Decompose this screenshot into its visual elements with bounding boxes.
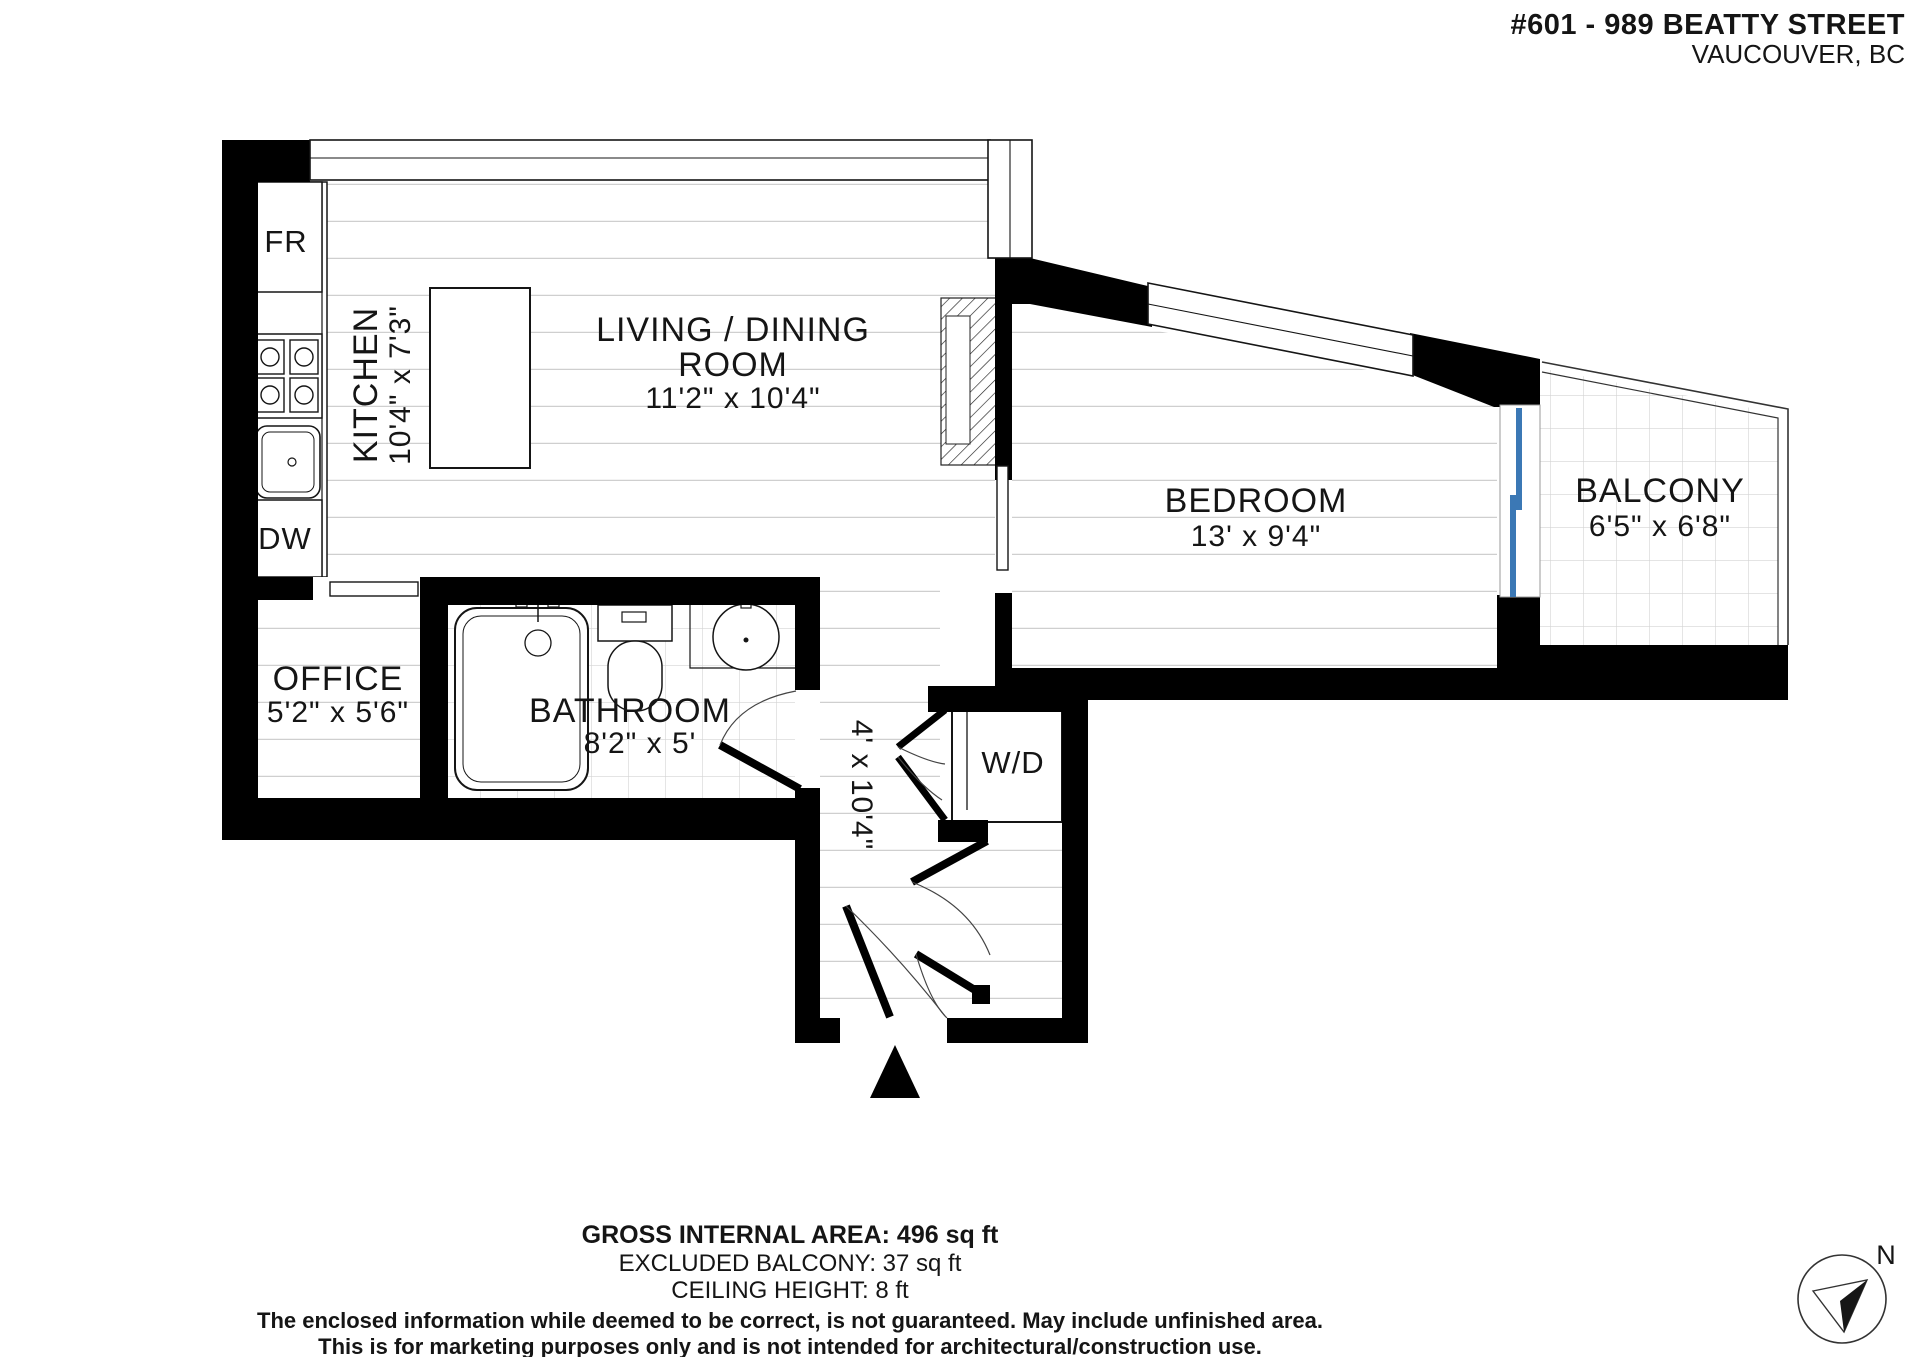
balcony-door-panel-2 (1510, 495, 1516, 597)
washer-dryer-label: W/D (981, 745, 1044, 780)
duct-inner (946, 316, 970, 444)
footer: GROSS INTERNAL AREA: 496 sq ft EXCLUDED … (257, 1221, 1323, 1357)
wall-top-left-corner (222, 140, 310, 182)
bedroom-label: BEDROOM (1165, 482, 1348, 520)
wall-entry-bottom-right (947, 1018, 1088, 1043)
wall-balcony-door-column (1497, 595, 1540, 670)
bathroom-sink (713, 604, 779, 670)
living-room-label-1: LIVING / DINING (596, 311, 870, 349)
fridge-label: FR (264, 224, 307, 259)
wall-bathroom-top (448, 577, 795, 605)
burner-ring-icon (295, 348, 313, 366)
burner-ring-icon (295, 386, 313, 404)
gross-area-text: GROSS INTERNAL AREA: 496 sq ft (582, 1221, 999, 1249)
entrance-marker-icon (870, 1045, 920, 1098)
ceiling-height-text: CEILING HEIGHT: 8 ft (671, 1277, 909, 1304)
sink-drain-icon (288, 458, 296, 466)
living-room-dims: 11'2" x 10'4" (645, 382, 820, 415)
bathroom-sink-drain-icon (744, 638, 749, 643)
floorplan-page: LIVING / DINING ROOM 11'2" x 10'4" KITCH… (0, 0, 1920, 1357)
hall-dims: 4' x 10'4" (845, 720, 878, 851)
wall-closet-bottom (938, 820, 988, 842)
address-line-1: #601 - 989 BEATTY STREET (1510, 9, 1905, 41)
disclaimer-line-1: The enclosed information while deemed to… (257, 1308, 1323, 1333)
bathroom-label: BATHROOM (529, 692, 731, 730)
window-living-top (310, 140, 990, 180)
wall-bathroom-right-upper (795, 577, 820, 690)
balcony-door-panel-1 (1516, 408, 1522, 510)
office-label: OFFICE (273, 660, 404, 698)
wall-bottom-office-bath (222, 798, 820, 840)
wall-hall-left (795, 840, 820, 1043)
balcony-label: BALCONY (1575, 472, 1745, 510)
kitchen-dims: 10'4" x 7'3" (384, 305, 417, 465)
bathroom-dims: 8'2" x 5' (584, 727, 697, 760)
wall-bedroom-left-upper (995, 302, 1012, 480)
kitchen-island (430, 288, 530, 468)
compass: N (1798, 1240, 1896, 1343)
balcony-sliding-door (1500, 405, 1540, 597)
floorplan-svg: LIVING / DINING ROOM 11'2" x 10'4" KITCH… (0, 0, 1920, 1357)
wall-office-top (258, 577, 313, 600)
excluded-balcony-text: EXCLUDED BALCONY: 37 sq ft (619, 1250, 962, 1277)
wall-office-bath-divider (420, 577, 448, 798)
address-line-2: VAUCOUVER, BC (1692, 39, 1905, 69)
wall-left (222, 140, 258, 840)
burner-ring-icon (261, 386, 279, 404)
office-pocket-door (330, 582, 418, 596)
disclaimer-line-2: This is for marketing purposes only and … (318, 1334, 1262, 1357)
header: #601 - 989 BEATTY STREET VAUCOUVER, BC (1510, 9, 1905, 69)
burner-ring-icon (261, 348, 279, 366)
wall-balcony-bottom (1540, 645, 1788, 700)
wall-bedroom-left-lower (995, 593, 1012, 693)
dishwasher-label: DW (258, 521, 312, 556)
living-room-label-2: ROOM (678, 346, 788, 384)
wall-closet-right (1062, 686, 1088, 1043)
bedroom-dims: 13' x 9'4" (1191, 520, 1322, 553)
tub-drain-icon (525, 630, 551, 656)
balcony-dims: 6'5" x 6'8" (1589, 510, 1731, 543)
bedroom-sliding-door (997, 466, 1008, 570)
kitchen-label: KITCHEN (347, 307, 385, 463)
wall-entry-bottom-left (795, 1018, 840, 1043)
office-dims: 5'2" x 5'6" (267, 696, 409, 729)
hall-floor-lower (940, 842, 1062, 1020)
compass-north-label: N (1876, 1240, 1896, 1270)
toilet-tank (598, 605, 672, 641)
toilet-flush-button (622, 612, 646, 622)
